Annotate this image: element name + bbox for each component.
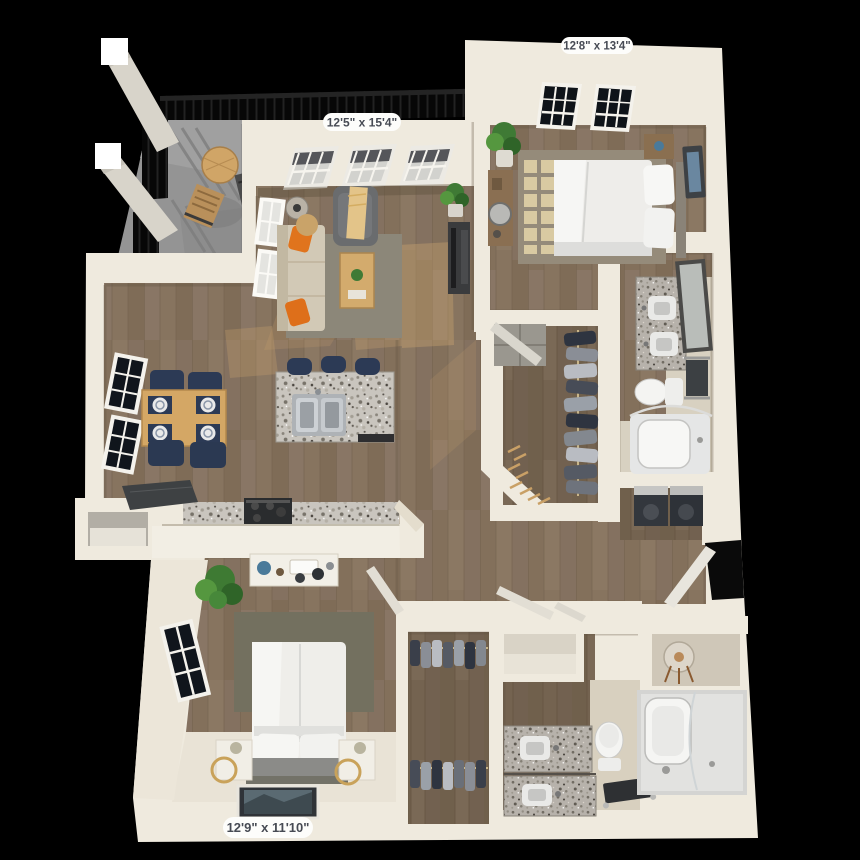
svg-text:12'5" x 15'4": 12'5" x 15'4" xyxy=(327,116,397,130)
svg-text:12'8" x 13'4": 12'8" x 13'4" xyxy=(563,41,631,53)
svg-text:12'9" x 11'10": 12'9" x 11'10" xyxy=(227,820,310,835)
